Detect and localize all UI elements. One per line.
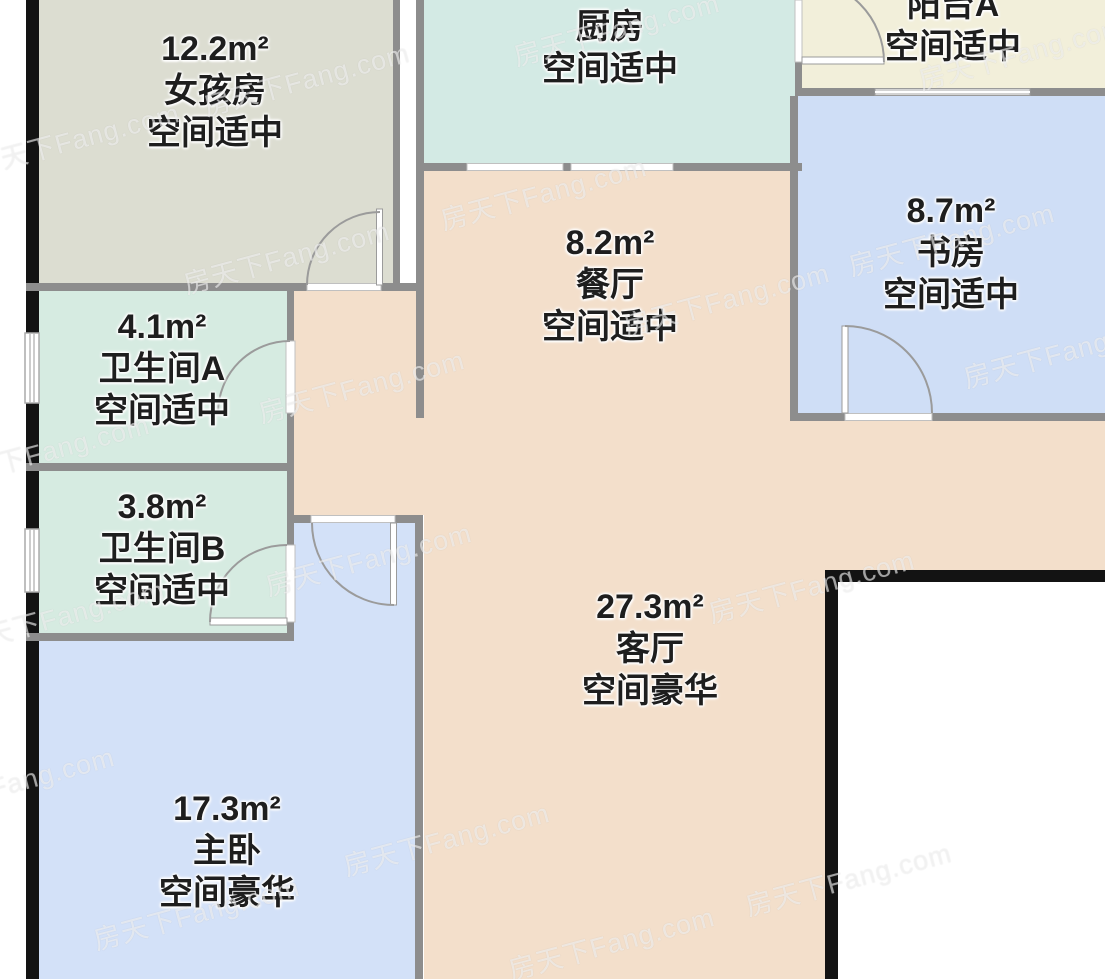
room-area: 12.2m² xyxy=(65,28,365,70)
room-name: 主卧 xyxy=(77,830,377,872)
floorplan: 12.2m² 女孩房 空间适中 6.1m² 厨房 空间适中 阳台A 空间适中 8… xyxy=(0,0,1105,979)
label-dining: 8.2m² 餐厅 空间适中 xyxy=(460,222,760,348)
label-girls-room: 12.2m² 女孩房 空间适中 xyxy=(65,28,365,154)
door-master xyxy=(311,516,397,606)
room-name: 厨房 xyxy=(460,6,760,48)
room-status: 空间豪华 xyxy=(77,872,377,914)
room-area: 8.7m² xyxy=(801,190,1101,232)
kitchen-opening-2 xyxy=(571,164,673,171)
room-status: 空间适中 xyxy=(12,570,312,612)
room-area: 17.3m² xyxy=(77,788,377,830)
room-name: 餐厅 xyxy=(460,264,760,306)
label-kitchen: 6.1m² 厨房 空间适中 xyxy=(460,0,760,90)
label-balcony-a: 阳台A 空间适中 xyxy=(803,0,1103,68)
label-bath-a: 4.1m² 卫生间A 空间适中 xyxy=(12,306,312,432)
window-balcony xyxy=(875,89,1030,96)
room-area: 8.2m² xyxy=(460,222,760,264)
label-bath-b: 3.8m² 卫生间B 空间适中 xyxy=(12,486,312,612)
room-name: 女孩房 xyxy=(65,70,365,112)
kitchen-opening-1 xyxy=(467,164,563,171)
room-name: 书房 xyxy=(801,232,1101,274)
room-status: 空间适中 xyxy=(65,112,365,154)
room-name: 阳台A xyxy=(803,0,1103,26)
room-status: 空间适中 xyxy=(460,48,760,90)
room-name: 客厅 xyxy=(500,628,800,670)
label-study: 8.7m² 书房 空间适中 xyxy=(801,190,1101,316)
door-girls-room xyxy=(307,209,383,291)
room-area: 4.1m² xyxy=(12,306,312,348)
room-status: 空间豪华 xyxy=(500,670,800,712)
room-status: 空间适中 xyxy=(801,274,1101,316)
room-area: 27.3m² xyxy=(500,586,800,628)
label-living: 27.3m² 客厅 空间豪华 xyxy=(500,586,800,712)
door-study xyxy=(842,326,932,421)
room-name: 卫生间A xyxy=(12,348,312,390)
room-status: 空间适中 xyxy=(460,306,760,348)
room-status: 空间适中 xyxy=(12,390,312,432)
room-area: 3.8m² xyxy=(12,486,312,528)
room-status: 空间适中 xyxy=(803,26,1103,68)
room-name: 卫生间B xyxy=(12,528,312,570)
label-master: 17.3m² 主卧 空间豪华 xyxy=(77,788,377,914)
